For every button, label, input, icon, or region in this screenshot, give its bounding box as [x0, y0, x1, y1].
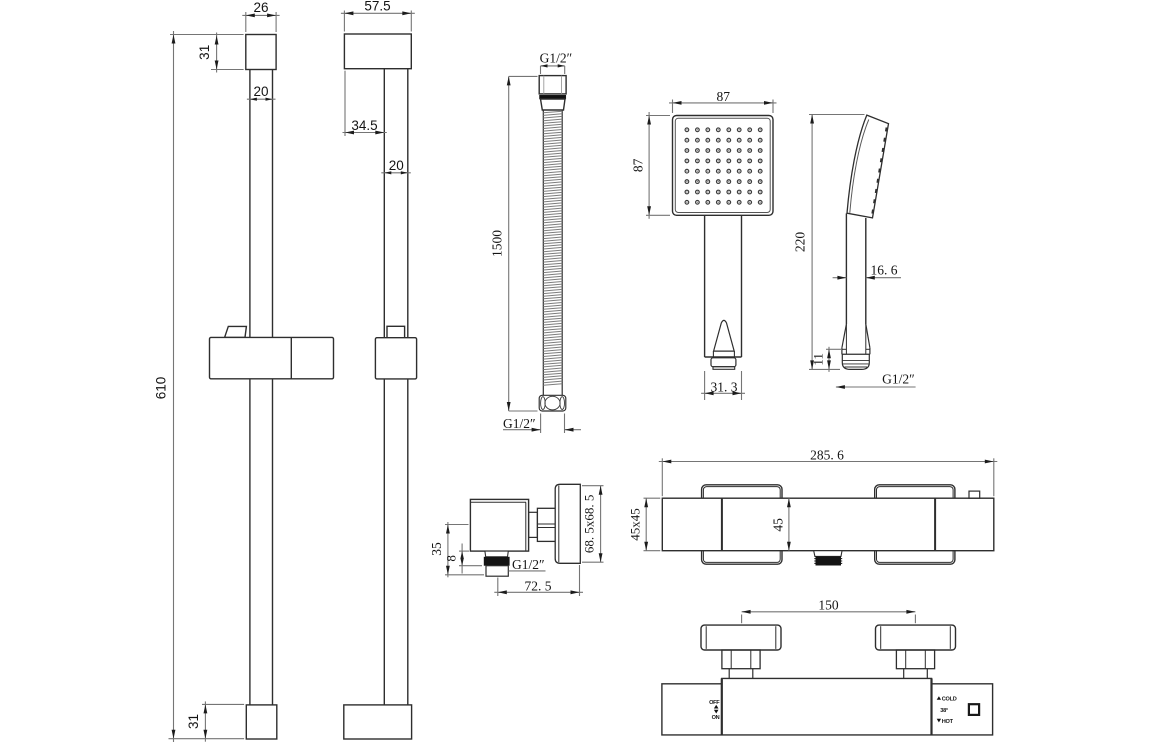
svg-text:COLD: COLD	[942, 696, 957, 702]
svg-text:G1/2″: G1/2″	[512, 557, 545, 572]
svg-text:8: 8	[444, 555, 459, 562]
svg-text:220: 220	[792, 232, 807, 253]
svg-text:OFF: OFF	[709, 700, 720, 706]
svg-text:31: 31	[186, 714, 201, 729]
svg-text:610: 610	[154, 377, 169, 400]
svg-text:45x45: 45x45	[628, 508, 643, 541]
svg-text:G1/2″: G1/2″	[540, 51, 573, 66]
svg-text:34.5: 34.5	[351, 118, 377, 133]
svg-text:57.5: 57.5	[364, 0, 390, 13]
svg-text:35: 35	[429, 542, 444, 556]
svg-text:150: 150	[818, 598, 839, 613]
svg-text:ON: ON	[712, 715, 720, 721]
svg-text:72. 5: 72. 5	[525, 578, 552, 593]
svg-text:68. 5x68. 5: 68. 5x68. 5	[582, 495, 597, 554]
svg-text:11: 11	[810, 353, 825, 366]
svg-text:16. 6: 16. 6	[871, 263, 898, 278]
svg-text:G1/2″: G1/2″	[882, 372, 915, 387]
svg-text:31: 31	[197, 45, 212, 60]
svg-text:1500: 1500	[489, 230, 504, 257]
svg-text:26: 26	[253, 0, 268, 15]
svg-text:HOT: HOT	[942, 719, 954, 725]
svg-text:31. 3: 31. 3	[711, 379, 738, 394]
svg-text:285. 6: 285. 6	[810, 447, 844, 462]
svg-text:87: 87	[630, 158, 645, 172]
svg-text:G1/2″: G1/2″	[503, 416, 536, 431]
svg-text:45: 45	[770, 518, 785, 532]
svg-text:38°: 38°	[940, 708, 948, 714]
svg-text:20: 20	[253, 84, 268, 99]
svg-text:20: 20	[389, 158, 404, 173]
svg-text:87: 87	[717, 89, 731, 104]
